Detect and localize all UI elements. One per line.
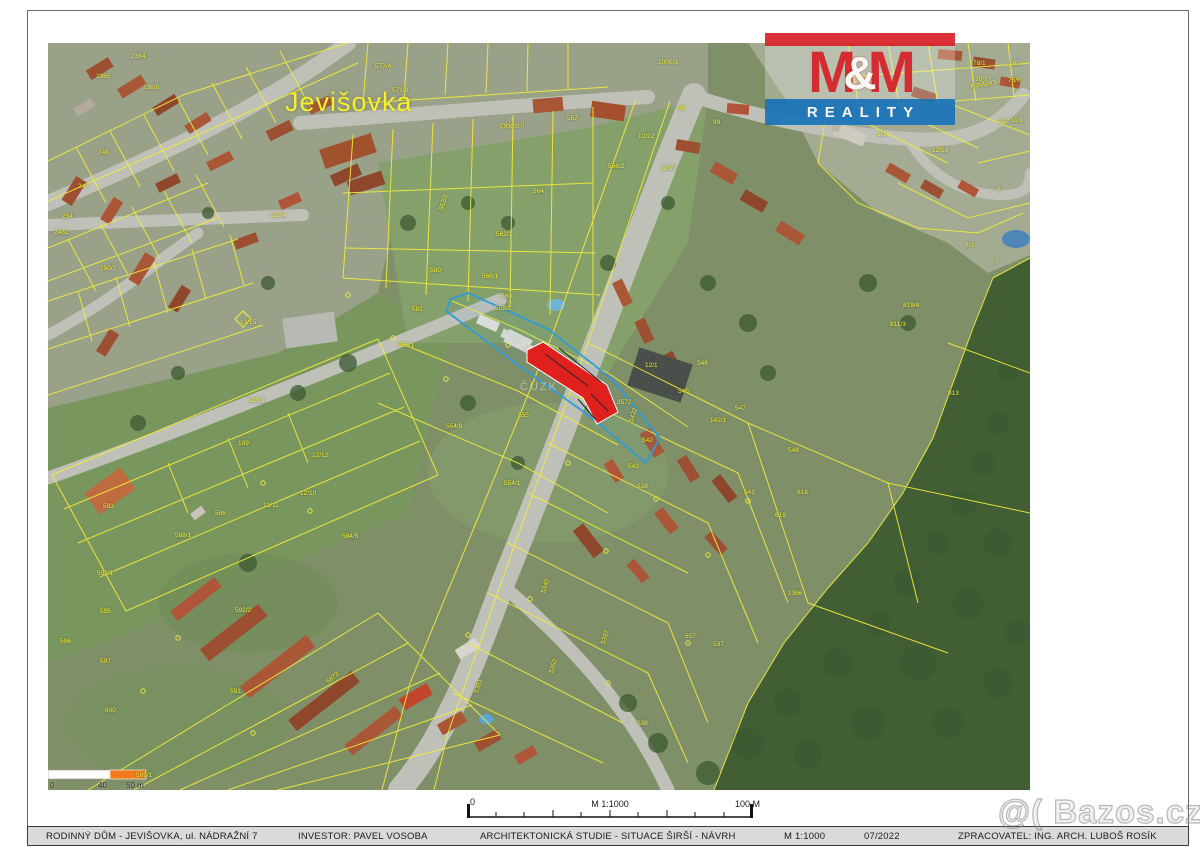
logo-ampersand: & <box>843 46 876 100</box>
titleblock-date: 07/2022 <box>864 831 900 842</box>
titleblock-scale: M 1:1000 <box>784 831 825 842</box>
scalebar-ticks <box>460 797 760 823</box>
logo-reality-bar: REALITY <box>765 99 955 125</box>
map-scalebar-end: 50 m <box>126 781 144 790</box>
logo-reality-text: REALITY <box>807 104 920 121</box>
drawing-sheet: 23642365236/82482472431254250/212/2413/1… <box>0 0 1200 848</box>
drawing-scalebar: 0 M 1:1000 100 M <box>460 797 760 823</box>
pond <box>1002 230 1030 248</box>
cuzk-watermark: ČÚZK <box>520 381 558 393</box>
map-scalebar-mid: 40 <box>98 781 107 790</box>
town-name-label: Jevišovka <box>285 87 413 118</box>
titleblock-investor: INVESTOR: PAVEL VOSOBA <box>298 831 428 842</box>
bazos-watermark: @( Bazos.cz <box>998 793 1200 831</box>
logo-mm-letters: M & M <box>765 46 955 99</box>
map-scalebar <box>48 770 146 779</box>
titleblock-author: ZPRACOVATEL: ING. ARCH. LUBOŠ ROSÍK <box>958 831 1157 842</box>
mm-reality-logo: M & M REALITY <box>765 33 955 125</box>
titleblock-project: RODINNÝ DŮM - JEVIŠOVKA, ul. NÁDRAŽNÍ 7 <box>46 831 258 842</box>
map-graphics <box>48 43 1030 790</box>
map-scalebar-start: 0 <box>50 781 54 790</box>
titleblock-drawing-name: ARCHITEKTONICKÁ STUDIE - SITUACE ŠIRŠÍ -… <box>480 831 736 842</box>
logo-red-bar <box>765 33 955 46</box>
aerial-cadastral-map: 23642365236/82482472431254250/212/2413/1… <box>48 43 1030 790</box>
